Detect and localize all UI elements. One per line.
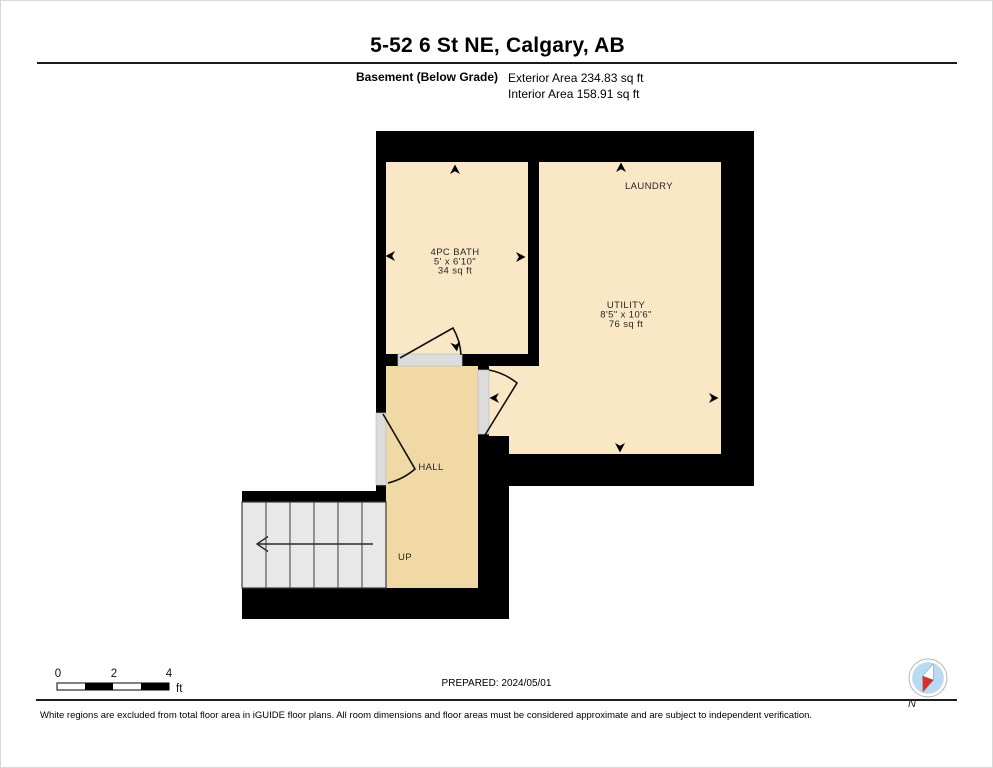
- scale-bar: 0 2 4 ft: [55, 668, 183, 695]
- room-fills: [386, 162, 721, 588]
- floorplan-page: 5-52 6 St NE, Calgary, AB Basement (Belo…: [0, 0, 993, 768]
- footer-divider: [36, 699, 957, 701]
- footer-disclaimer: White regions are excluded from total fl…: [40, 710, 970, 721]
- compass: N: [908, 659, 947, 710]
- bath-area-label: 34 sq ft: [438, 266, 472, 277]
- wall-south-band: [242, 588, 509, 619]
- utility-door-opening: [478, 370, 489, 434]
- scale-unit-label: ft: [176, 683, 183, 695]
- wall-bath-utility-divider: [528, 131, 539, 366]
- wall-hall-west-upper: [376, 366, 386, 413]
- wall-east: [721, 131, 754, 486]
- floor-plan-drawing: 4PC BATH 5' x 6'10" 34 sq ft LAUNDRY UTI…: [1, 1, 993, 768]
- laundry-name-label: LAUNDRY: [625, 181, 673, 192]
- hall-name-label: HALL: [418, 462, 443, 473]
- wall-utility-south: [478, 454, 754, 486]
- scale-bar-segment: [141, 683, 169, 690]
- scale-tick-4: 4: [166, 668, 173, 680]
- stairs-up-label: UP: [398, 552, 412, 563]
- stairs: [242, 502, 386, 588]
- scale-tick-2: 2: [111, 668, 117, 680]
- scale-tick-0: 0: [55, 668, 61, 680]
- prepared-date-label: PREPARED: 2024/05/01: [371, 678, 622, 689]
- wall-north: [376, 131, 754, 162]
- utility-area-label: 76 sq ft: [609, 319, 643, 330]
- hall-west-door-opening: [376, 413, 386, 485]
- wall-west-bath: [376, 131, 386, 366]
- scale-bar-segment: [85, 683, 113, 690]
- wall-stairs-north: [242, 491, 391, 502]
- bath-door-opening: [398, 354, 462, 366]
